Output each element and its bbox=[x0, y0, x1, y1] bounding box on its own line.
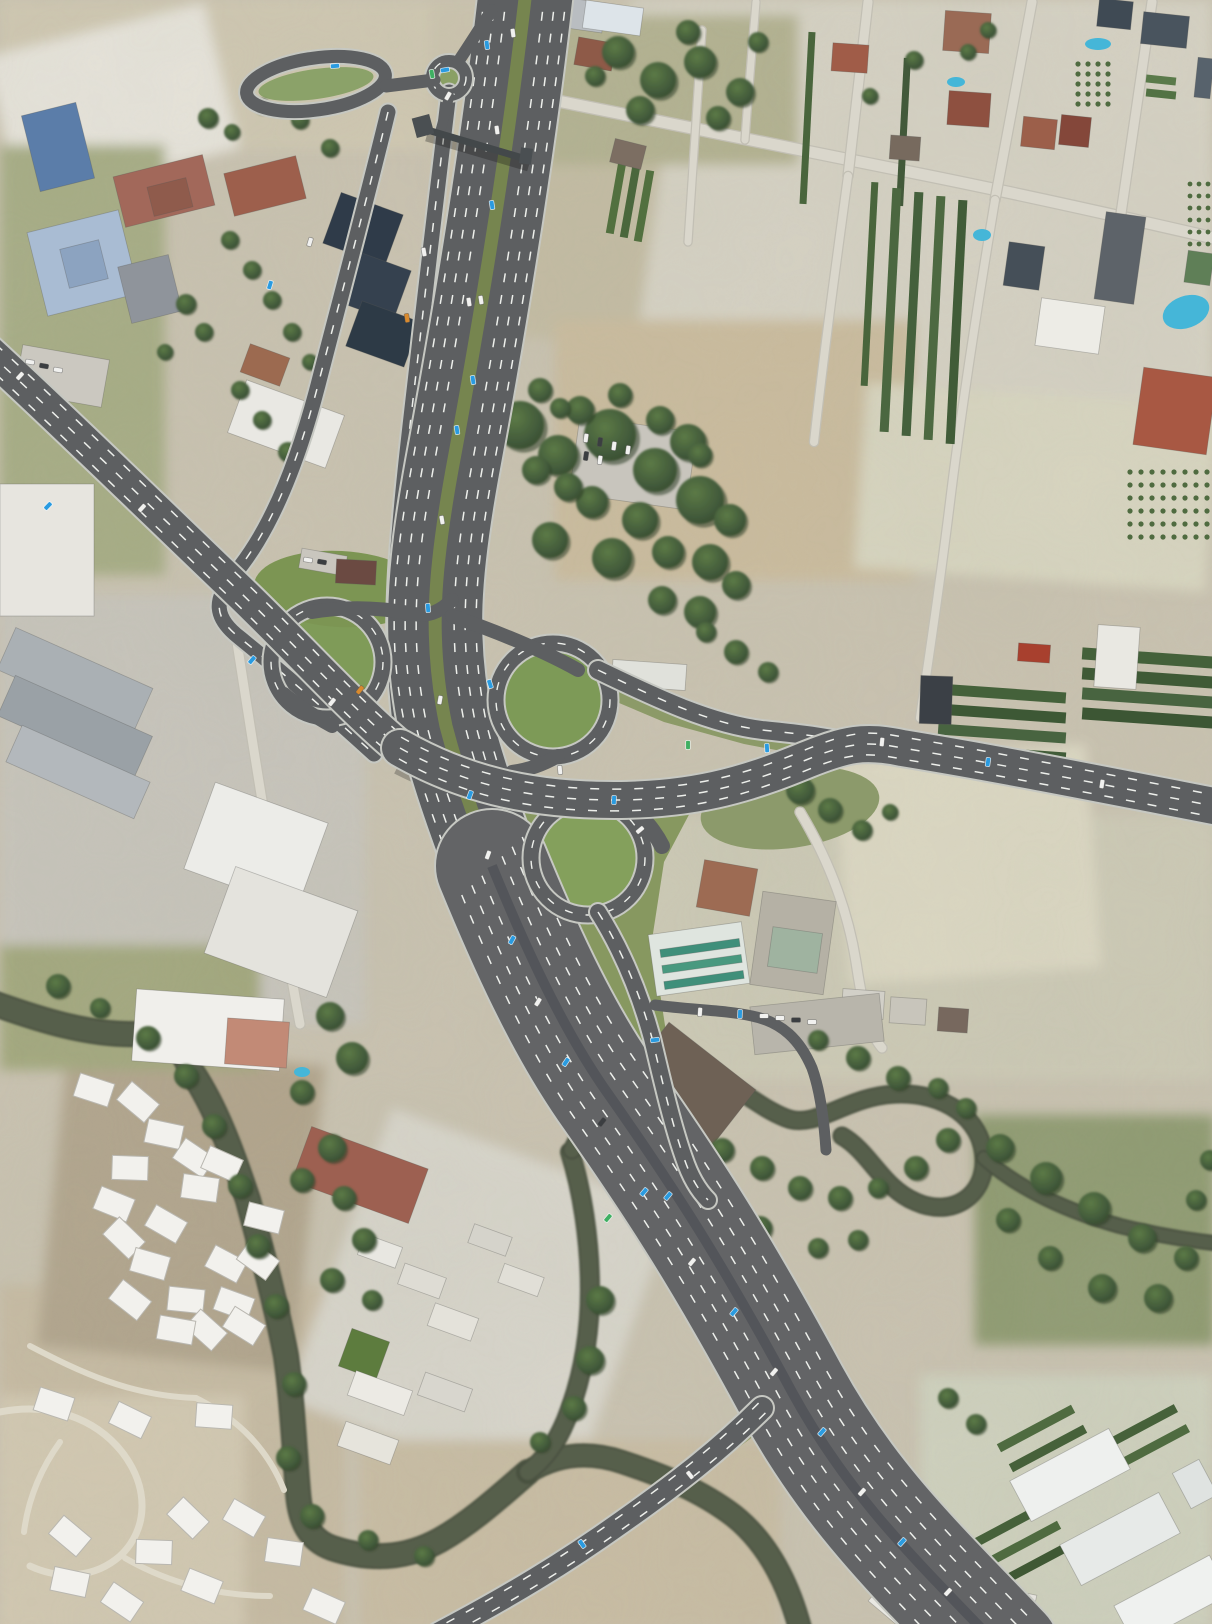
tree bbox=[276, 1446, 300, 1470]
tree bbox=[980, 22, 996, 38]
vehicle bbox=[597, 437, 603, 447]
vehicle bbox=[760, 1014, 769, 1019]
tree bbox=[706, 106, 730, 130]
orchard-tree bbox=[1105, 91, 1110, 96]
tree bbox=[788, 1176, 812, 1200]
orchard-tree bbox=[1171, 482, 1176, 487]
tree bbox=[608, 383, 632, 407]
tree bbox=[905, 51, 923, 69]
tree bbox=[904, 1156, 928, 1180]
footbridge-east-landing bbox=[519, 147, 533, 165]
orchard-tree bbox=[1206, 182, 1211, 187]
tree bbox=[195, 323, 213, 341]
tree bbox=[562, 1396, 586, 1420]
tree bbox=[528, 378, 552, 402]
tree bbox=[198, 108, 218, 128]
orchard-tree bbox=[1127, 469, 1132, 474]
orchard-tree bbox=[1127, 534, 1132, 539]
tree bbox=[136, 1026, 160, 1050]
vehicle bbox=[466, 297, 472, 307]
tree bbox=[646, 406, 674, 434]
building bbox=[889, 135, 921, 161]
tree bbox=[714, 504, 746, 536]
orchard-tree bbox=[1095, 101, 1100, 106]
tree bbox=[692, 544, 728, 580]
vehicle bbox=[583, 451, 589, 461]
orchard-tree bbox=[1204, 469, 1209, 474]
orchard-tree bbox=[1138, 495, 1143, 500]
orchard-tree bbox=[1171, 534, 1176, 539]
vehicle bbox=[484, 40, 490, 50]
swimming-pool bbox=[294, 1067, 310, 1077]
orchard-tree bbox=[1075, 61, 1080, 66]
vehicle bbox=[494, 125, 500, 135]
orchard-tree bbox=[1160, 534, 1165, 539]
tree bbox=[530, 1432, 550, 1452]
orchard-tree bbox=[1149, 495, 1154, 500]
vehicle bbox=[686, 741, 691, 750]
orchard-tree bbox=[1085, 101, 1090, 106]
orchard-tree bbox=[1188, 242, 1193, 247]
orchard-tree bbox=[1127, 482, 1132, 487]
vehicle bbox=[1099, 779, 1105, 789]
orchard-tree bbox=[1171, 508, 1176, 513]
orchard-tree bbox=[1085, 91, 1090, 96]
tree bbox=[1030, 1162, 1062, 1194]
orchard-tree bbox=[1197, 242, 1202, 247]
tree bbox=[828, 1186, 852, 1210]
vehicle bbox=[478, 295, 484, 305]
tree bbox=[224, 124, 240, 140]
orchard-tree bbox=[1138, 482, 1143, 487]
orchard-tree bbox=[1160, 521, 1165, 526]
tree bbox=[726, 78, 754, 106]
tree bbox=[174, 1064, 198, 1088]
orchard-tree bbox=[1171, 495, 1176, 500]
tree bbox=[522, 456, 550, 484]
vehicle bbox=[612, 795, 617, 804]
orchard-tree bbox=[1149, 469, 1154, 474]
tree bbox=[320, 1268, 344, 1292]
tree bbox=[243, 261, 261, 279]
vehicle bbox=[650, 1037, 660, 1043]
tree bbox=[358, 1530, 378, 1550]
tree bbox=[352, 1228, 376, 1252]
building bbox=[1184, 250, 1212, 285]
tree bbox=[228, 1174, 252, 1198]
orchard-tree bbox=[1188, 206, 1193, 211]
orchard-tree bbox=[1160, 482, 1165, 487]
orchard-tree bbox=[1182, 469, 1187, 474]
white-housing-block bbox=[181, 1174, 220, 1203]
tree bbox=[724, 640, 748, 664]
orchard-tree bbox=[1182, 508, 1187, 513]
tree bbox=[318, 1134, 346, 1162]
orchard-tree bbox=[1085, 71, 1090, 76]
orchard-tree bbox=[1188, 230, 1193, 235]
tree bbox=[996, 1208, 1020, 1232]
orchard-tree bbox=[1182, 495, 1187, 500]
white-housing-block bbox=[167, 1286, 205, 1314]
aerial-imagery-viewport bbox=[0, 0, 1212, 1624]
tree bbox=[263, 291, 281, 309]
building bbox=[889, 997, 927, 1025]
orchard-tree bbox=[1095, 71, 1100, 76]
tree bbox=[253, 411, 271, 429]
building bbox=[696, 860, 758, 917]
vehicle bbox=[454, 425, 460, 435]
orchard-tree bbox=[1085, 81, 1090, 86]
vehicle bbox=[425, 603, 430, 612]
tree bbox=[246, 1234, 270, 1258]
tree bbox=[750, 1156, 774, 1180]
tree bbox=[176, 294, 196, 314]
vehicle bbox=[330, 63, 339, 68]
orchard-tree bbox=[1206, 194, 1211, 199]
tree bbox=[1174, 1246, 1198, 1270]
vehicle bbox=[611, 441, 617, 451]
tree bbox=[554, 473, 582, 501]
orchard-tree bbox=[1105, 101, 1110, 106]
orchard-tree bbox=[1095, 91, 1100, 96]
swimming-pool bbox=[1085, 38, 1111, 50]
tree bbox=[688, 443, 712, 467]
orchard-tree bbox=[1204, 534, 1209, 539]
orchard-tree bbox=[1105, 71, 1110, 76]
tree bbox=[960, 44, 976, 60]
vehicle bbox=[470, 375, 476, 385]
tree bbox=[264, 1294, 288, 1318]
tree bbox=[633, 448, 677, 492]
tree bbox=[722, 571, 750, 599]
building bbox=[1021, 116, 1058, 149]
vehicle bbox=[404, 313, 410, 323]
orchard-tree bbox=[1193, 482, 1198, 487]
tree bbox=[550, 398, 570, 418]
tree bbox=[414, 1546, 434, 1566]
orchard-tree bbox=[1182, 534, 1187, 539]
vehicle bbox=[557, 765, 563, 774]
orchard-tree bbox=[1197, 206, 1202, 211]
tree bbox=[157, 344, 173, 360]
orchard-tree bbox=[1204, 482, 1209, 487]
tree bbox=[626, 96, 654, 124]
orchard-tree bbox=[1127, 508, 1132, 513]
tree bbox=[846, 1046, 870, 1070]
building bbox=[1140, 12, 1189, 49]
orchard-tree bbox=[1204, 521, 1209, 526]
tree bbox=[956, 1098, 976, 1118]
building bbox=[937, 1007, 969, 1033]
tree bbox=[221, 231, 239, 249]
tree bbox=[684, 46, 716, 78]
tree bbox=[592, 538, 632, 578]
tree bbox=[808, 1238, 828, 1258]
tree bbox=[576, 1346, 604, 1374]
swimming-pool bbox=[973, 229, 991, 241]
orchard-tree bbox=[1105, 61, 1110, 66]
tree bbox=[696, 622, 716, 642]
tree bbox=[602, 36, 634, 68]
tree bbox=[648, 586, 676, 614]
tree bbox=[321, 139, 339, 157]
orchard-tree bbox=[1138, 469, 1143, 474]
vehicle bbox=[776, 1016, 785, 1021]
tree bbox=[316, 1002, 344, 1030]
orchard-tree bbox=[1105, 81, 1110, 86]
tree bbox=[283, 323, 301, 341]
tree bbox=[585, 66, 605, 86]
satellite-map-image bbox=[0, 0, 1212, 1624]
orchard-tree bbox=[1197, 230, 1202, 235]
tree bbox=[1128, 1224, 1156, 1252]
tree bbox=[676, 20, 700, 44]
vehicle bbox=[489, 200, 495, 210]
tree bbox=[282, 1372, 306, 1396]
building bbox=[1097, 0, 1134, 30]
orchard-tree bbox=[1182, 521, 1187, 526]
vehicle bbox=[879, 737, 885, 746]
tree bbox=[652, 536, 684, 568]
orchard-tree bbox=[1193, 495, 1198, 500]
tree bbox=[1144, 1284, 1172, 1312]
tree bbox=[758, 662, 778, 682]
orchard-tree bbox=[1149, 482, 1154, 487]
tree bbox=[1038, 1246, 1062, 1270]
building bbox=[767, 927, 822, 974]
orchard-tree bbox=[1138, 521, 1143, 526]
orchard-tree bbox=[1206, 242, 1211, 247]
orchard-tree bbox=[1138, 508, 1143, 513]
tree bbox=[90, 998, 110, 1018]
orchard-tree bbox=[1160, 508, 1165, 513]
tree bbox=[290, 1080, 314, 1104]
orchard-tree bbox=[1075, 91, 1080, 96]
tree bbox=[622, 502, 658, 538]
orchard-tree bbox=[1149, 508, 1154, 513]
orchard-tree bbox=[1206, 230, 1211, 235]
orchard-tree bbox=[1206, 206, 1211, 211]
orchard-tree bbox=[1171, 521, 1176, 526]
tree bbox=[818, 798, 842, 822]
tree bbox=[1186, 1190, 1206, 1210]
tree bbox=[362, 1290, 382, 1310]
orchard-tree bbox=[1149, 521, 1154, 526]
building bbox=[1133, 367, 1212, 455]
swimming-pool bbox=[947, 77, 965, 87]
tree bbox=[936, 1128, 960, 1152]
tree bbox=[848, 1230, 868, 1250]
orchard-tree bbox=[1085, 61, 1090, 66]
white-housing-block bbox=[136, 1539, 173, 1564]
tree bbox=[748, 32, 768, 52]
orchard-tree bbox=[1095, 61, 1100, 66]
vehicle bbox=[697, 1007, 702, 1016]
tree bbox=[336, 1042, 368, 1074]
orchard-tree bbox=[1127, 495, 1132, 500]
orchard-tree bbox=[1075, 101, 1080, 106]
orchard-tree bbox=[1193, 469, 1198, 474]
orchard-tree bbox=[1095, 81, 1100, 86]
vehicle bbox=[792, 1018, 801, 1023]
orchard-tree bbox=[1197, 182, 1202, 187]
tree bbox=[586, 1286, 614, 1314]
roadway bbox=[386, 80, 434, 86]
tree bbox=[862, 88, 878, 104]
vehicle bbox=[808, 1020, 817, 1025]
building bbox=[1003, 242, 1045, 291]
orchard-tree bbox=[1193, 508, 1198, 513]
building bbox=[335, 559, 376, 585]
orchard-tree bbox=[1160, 495, 1165, 500]
vehicle bbox=[597, 455, 603, 465]
orchard-tree bbox=[1204, 495, 1209, 500]
building bbox=[919, 675, 953, 724]
orchard-tree bbox=[1204, 508, 1209, 513]
building bbox=[224, 1018, 289, 1068]
orchard-tree bbox=[1075, 71, 1080, 76]
vehicle bbox=[625, 445, 631, 455]
building bbox=[1094, 625, 1140, 690]
orchard-tree bbox=[1127, 521, 1132, 526]
tree bbox=[966, 1414, 986, 1434]
orchard-tree bbox=[1193, 534, 1198, 539]
building bbox=[1059, 115, 1092, 148]
orchard-tree bbox=[1160, 469, 1165, 474]
tree bbox=[231, 381, 249, 399]
orchard-tree bbox=[1188, 194, 1193, 199]
tree bbox=[1078, 1192, 1110, 1224]
tree bbox=[882, 804, 898, 820]
tree bbox=[808, 1030, 828, 1050]
tree bbox=[886, 1066, 910, 1090]
orchard-tree bbox=[1197, 218, 1202, 223]
vehicle bbox=[985, 757, 991, 767]
white-housing-block bbox=[265, 1538, 304, 1567]
tree bbox=[938, 1388, 958, 1408]
orchard-tree bbox=[1188, 182, 1193, 187]
tree bbox=[928, 1078, 948, 1098]
vehicle bbox=[764, 743, 769, 752]
tree bbox=[684, 596, 716, 628]
tree bbox=[202, 1114, 226, 1138]
orchard-tree bbox=[1149, 534, 1154, 539]
tree bbox=[852, 820, 872, 840]
tree bbox=[986, 1134, 1014, 1162]
vehicle bbox=[510, 28, 516, 38]
building bbox=[947, 91, 991, 128]
tree bbox=[46, 974, 70, 998]
tree bbox=[300, 1504, 324, 1528]
orchard-tree bbox=[1171, 469, 1176, 474]
tree bbox=[1088, 1274, 1116, 1302]
tree bbox=[290, 1168, 314, 1192]
orchard-tree bbox=[1193, 521, 1198, 526]
building bbox=[1035, 298, 1105, 354]
orchard-tree bbox=[1075, 81, 1080, 86]
orchard-tree bbox=[1188, 218, 1193, 223]
white-housing-block bbox=[195, 1403, 233, 1429]
orchard-tree bbox=[1138, 534, 1143, 539]
building bbox=[831, 43, 869, 73]
orchard-tree bbox=[1206, 218, 1211, 223]
vehicle bbox=[583, 433, 589, 443]
tree bbox=[640, 62, 676, 98]
tree bbox=[868, 1178, 888, 1198]
white-housing-block bbox=[112, 1155, 149, 1180]
building bbox=[1017, 643, 1050, 663]
orchard-tree bbox=[1197, 194, 1202, 199]
tree bbox=[332, 1186, 356, 1210]
orchard-tree bbox=[1182, 482, 1187, 487]
tree bbox=[532, 522, 568, 558]
vehicle bbox=[738, 1009, 743, 1018]
